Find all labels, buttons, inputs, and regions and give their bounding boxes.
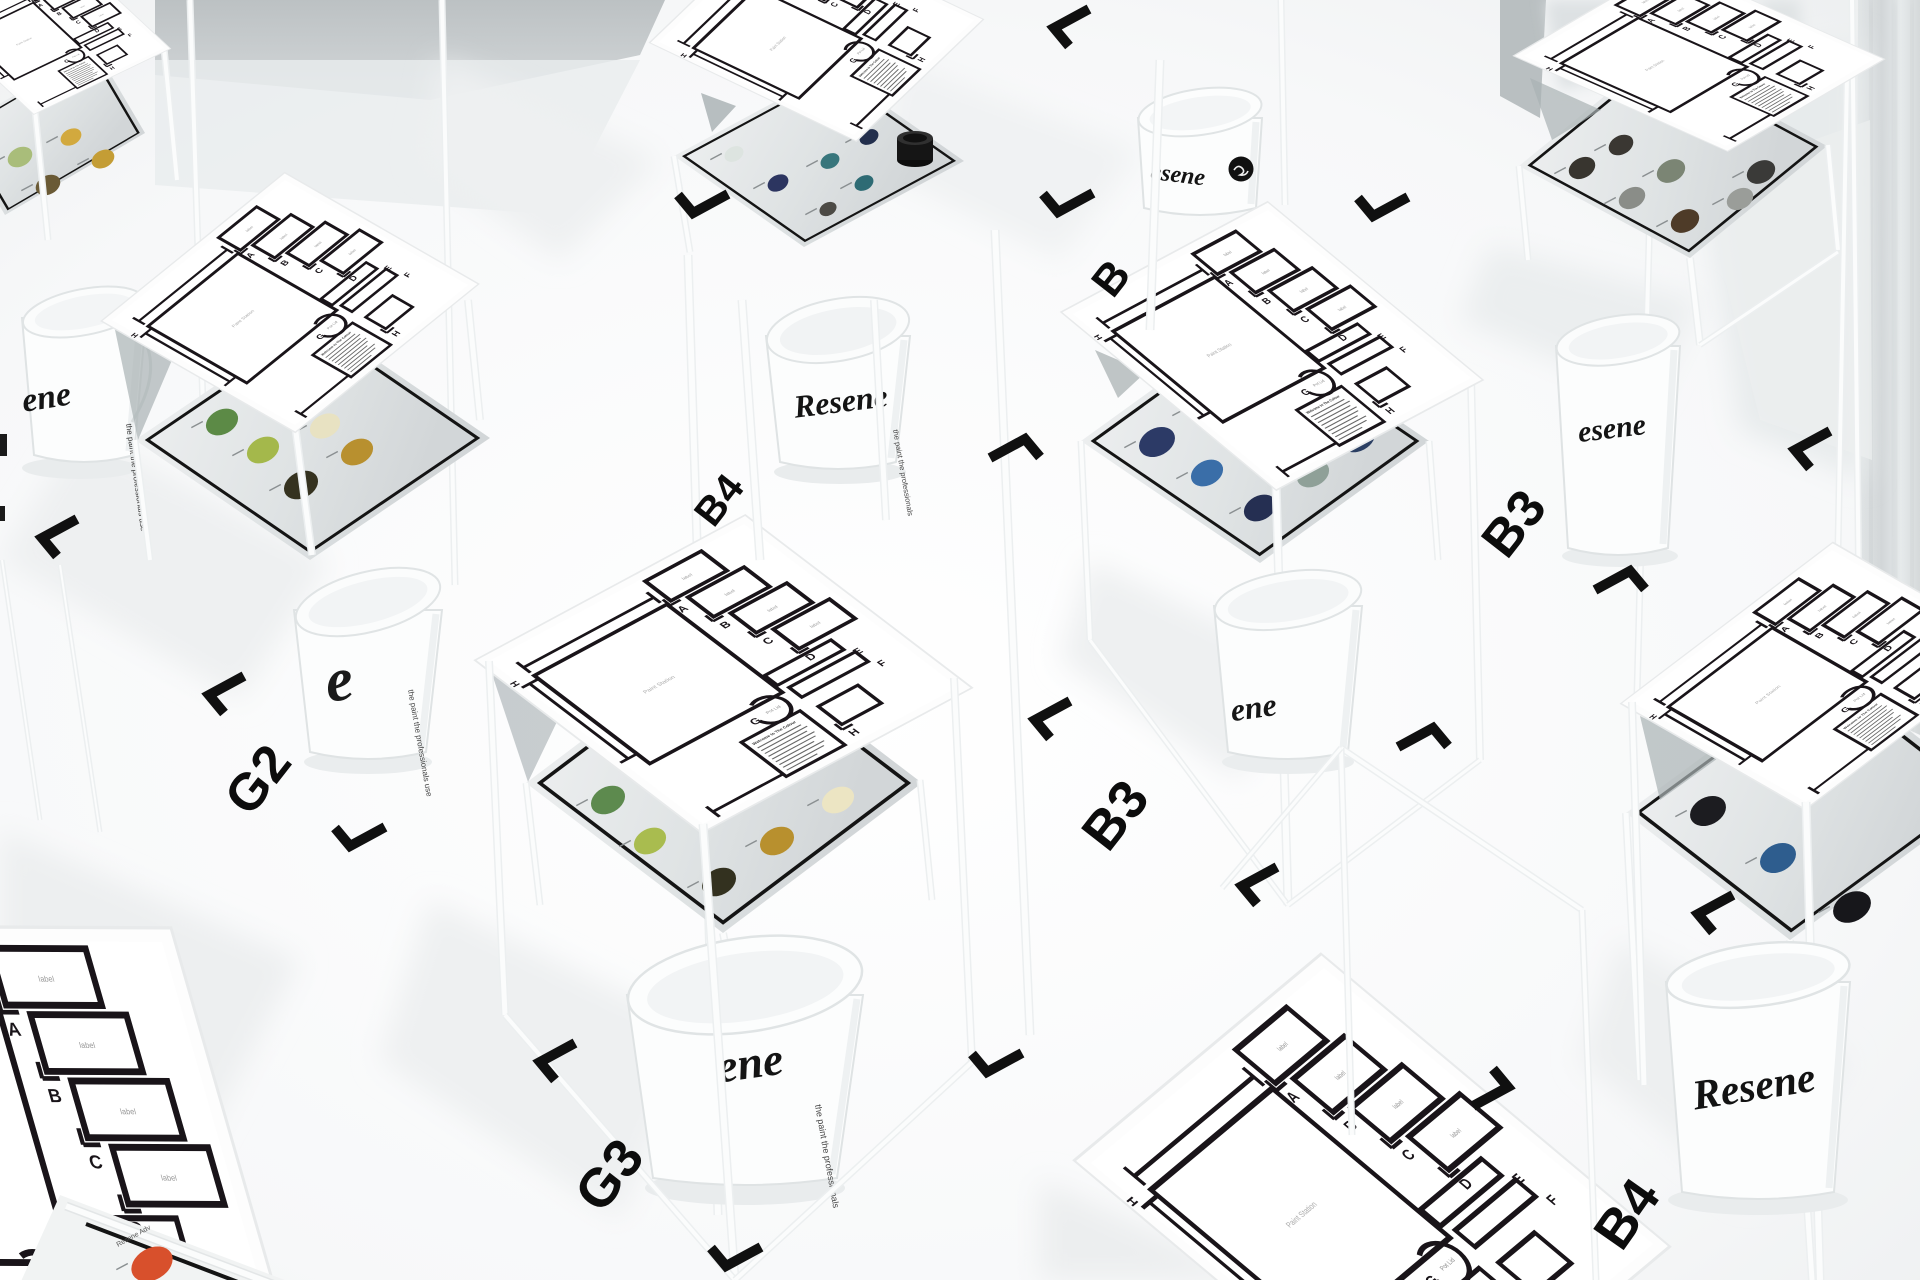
svg-text:ene: ene bbox=[19, 376, 73, 420]
svg-text:ene: ene bbox=[1228, 686, 1279, 728]
